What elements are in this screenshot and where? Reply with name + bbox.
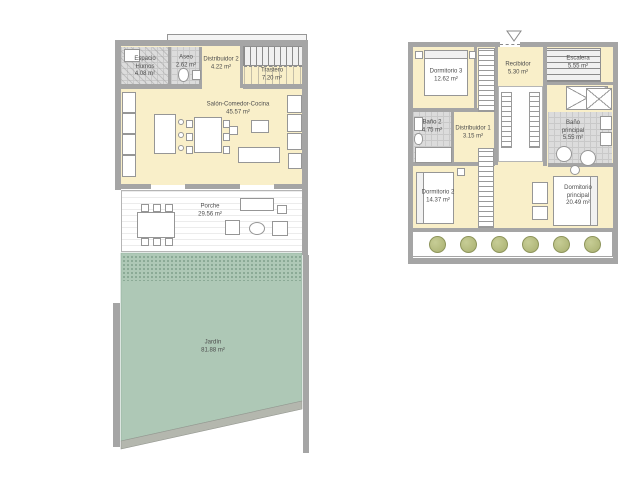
planter-icon <box>522 236 539 253</box>
bench <box>532 206 548 220</box>
shower <box>586 88 612 110</box>
wall <box>613 42 618 264</box>
room-area: 5.55 m² <box>566 63 589 71</box>
upper-floor-plan: Dormitorio 3 12.62 m² Recibidor 5.30 m² … <box>0 0 640 480</box>
room-label-dormitorio-principal: Dormitorio principal 20.49 m² <box>560 185 596 208</box>
planter-icon <box>553 236 570 253</box>
room-area: 3.15 m² <box>455 133 490 141</box>
wall <box>413 228 613 232</box>
wardrobe <box>529 92 540 148</box>
nightstand <box>457 168 465 176</box>
room-label-bano-2: Baño 2 4.75 m² <box>422 120 442 135</box>
planter-icon <box>491 236 508 253</box>
room-name: Baño 2 <box>422 120 442 128</box>
planter-icon <box>460 236 477 253</box>
wardrobe <box>478 48 495 112</box>
room-area: 4.75 m² <box>422 127 442 135</box>
room-label-recibidor: Recibidor 5.30 m² <box>505 62 530 77</box>
room-label-dormitorio-3: Dormitorio 3 12.62 m² <box>430 69 463 84</box>
room-area: 5.30 m² <box>505 69 530 77</box>
wall <box>548 163 613 167</box>
wardrobe <box>501 92 512 148</box>
room-name: Baño principal <box>557 120 589 135</box>
room-area: 12.62 m² <box>430 76 463 84</box>
wall <box>495 47 498 87</box>
sink <box>600 132 612 146</box>
bench <box>532 182 548 204</box>
wardrobe <box>478 148 494 228</box>
toilet <box>414 133 423 145</box>
entry-door-dashed <box>500 44 520 46</box>
wall <box>520 42 618 47</box>
nightstand <box>469 51 476 59</box>
bathtub <box>415 147 452 163</box>
room-name: Dormitorio 3 <box>430 69 463 77</box>
wall <box>543 47 547 166</box>
room-name: Dormitorio 2 <box>422 190 455 198</box>
room-area: 20.49 m² <box>560 200 596 208</box>
room-label-escalera: Escalera 5.55 m² <box>566 56 589 71</box>
room-name: Recibidor <box>505 62 530 70</box>
room-name: Distribuidor 1 <box>455 126 490 134</box>
bed-pillows <box>424 50 468 59</box>
room-label-distribuidor-1: Distribuidor 1 3.15 m² <box>455 126 490 141</box>
room-label-bano-principal: Baño principal 5.55 m² <box>557 120 589 143</box>
room-name: Escalera <box>566 56 589 64</box>
wall <box>408 258 618 264</box>
wall <box>413 108 478 112</box>
planter-icon <box>429 236 446 253</box>
wall <box>543 82 618 85</box>
armchair <box>556 146 572 162</box>
room-label-dormitorio-2: Dormitorio 2 14.37 m² <box>422 190 455 205</box>
side-table <box>570 165 580 175</box>
floor-plans-canvas: Espacio Humos 4.08 m² Aseo 2.62 m² Distr… <box>0 0 640 480</box>
planter-icon <box>584 236 601 253</box>
nightstand <box>415 51 423 59</box>
armchair <box>580 150 596 166</box>
room-area: 14.37 m² <box>422 197 455 205</box>
sink <box>600 116 612 130</box>
room-area: 5.55 m² <box>557 135 589 143</box>
wall <box>408 42 500 47</box>
room-name: Dormitorio principal <box>560 185 596 200</box>
